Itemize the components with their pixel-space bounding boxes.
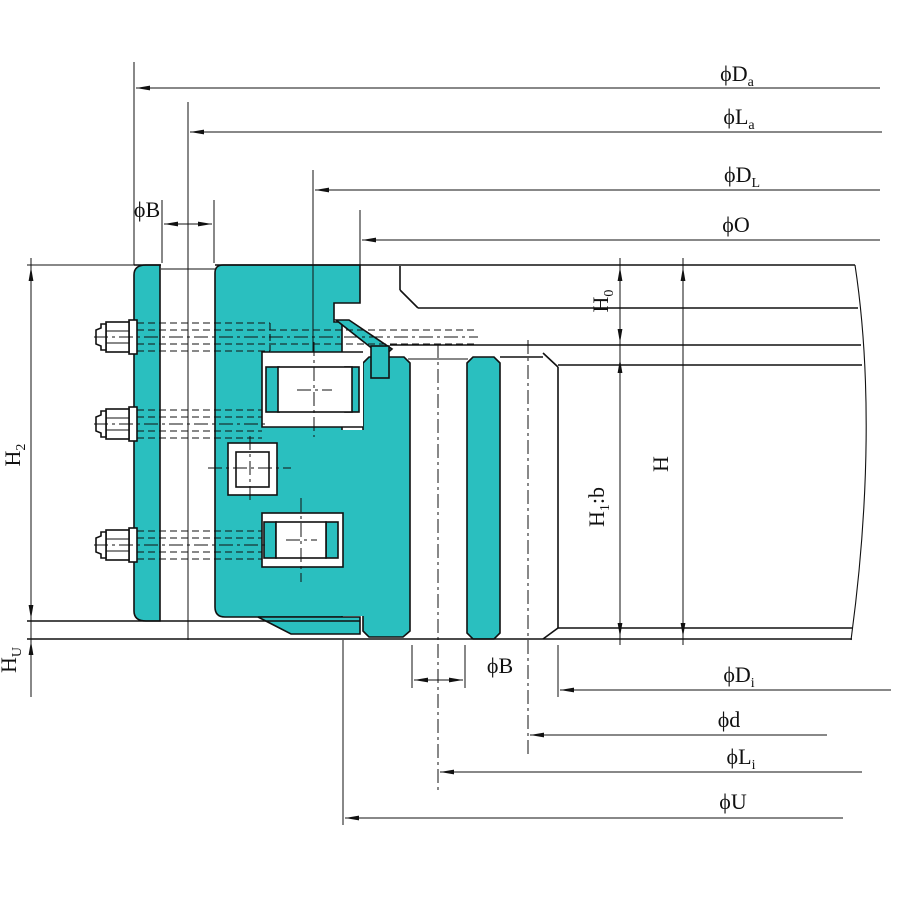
break-line: [851, 265, 866, 640]
label-phi-di: ϕDi: [723, 662, 754, 691]
label-phi-u: ϕU: [719, 789, 747, 814]
label-h: H: [648, 456, 673, 472]
label-hu: HU: [0, 647, 25, 673]
inner-ring-left-column: [363, 357, 410, 637]
label-h2: H2: [0, 444, 29, 467]
ring-bridge2: [358, 430, 366, 616]
lower-roller-spacer-left: [264, 522, 276, 558]
inner-ring-right-column: [467, 357, 500, 639]
upper-seal-retainer: [371, 346, 389, 378]
label-phi-b-bottom: ϕB: [487, 653, 513, 678]
technical-drawing-canvas: ϕDa ϕLa ϕDL ϕO ϕB ϕB ϕDi ϕd ϕLi ϕU H2 HU…: [0, 0, 900, 900]
upper-roller-spacer-left: [266, 367, 279, 412]
support-top-chamfer: [543, 353, 558, 367]
sectioned-parts: [134, 265, 500, 639]
label-phi-b-top: ϕB: [134, 197, 160, 222]
label-phi-la: ϕLa: [723, 104, 755, 133]
label-h1b: H1:b: [584, 487, 613, 527]
label-phi-li: ϕLi: [727, 744, 756, 773]
lower-seal-lip: [258, 617, 360, 634]
outer-ring-clamp-plate: [134, 265, 160, 621]
label-phi-da: ϕDa: [720, 61, 754, 90]
radial-roller: [236, 452, 269, 487]
label-phi-d: ϕd: [718, 707, 741, 732]
support-bottom-chamfer: [543, 628, 558, 639]
label-h0: H0: [588, 290, 617, 313]
seal-groove-chamfer: [400, 290, 418, 308]
bearing-section-drawing: ϕDa ϕLa ϕDL ϕO ϕB ϕB ϕDi ϕd ϕLi ϕU H2 HU…: [0, 0, 900, 900]
lower-roller-spacer-right: [326, 522, 338, 558]
label-phi-dl: ϕDL: [724, 162, 760, 191]
label-phi-o: ϕO: [722, 212, 749, 237]
